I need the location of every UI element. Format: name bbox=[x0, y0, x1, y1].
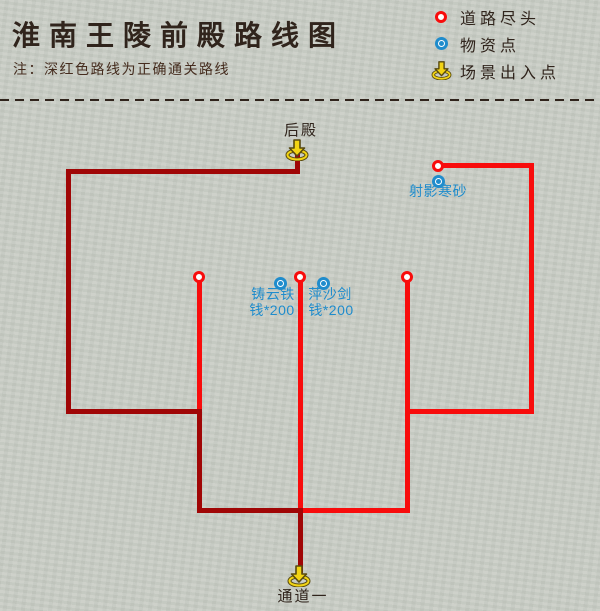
supply-dot bbox=[278, 281, 283, 286]
portal-label-houdian: 后殿 bbox=[284, 119, 318, 140]
supply-label: 萍沙剑 bbox=[308, 286, 352, 302]
route-correct-segment bbox=[66, 169, 71, 414]
supply-dot bbox=[321, 281, 326, 286]
road-end-marker bbox=[401, 271, 413, 283]
supply-label: 铸云铁 bbox=[251, 286, 295, 302]
portal-icon-tongdao-yi bbox=[287, 565, 311, 587]
portal-arrow-icon bbox=[431, 61, 452, 80]
road-end-marker bbox=[193, 271, 205, 283]
supply-point-icon bbox=[430, 34, 452, 54]
legend-item-portal: 场景出入点 bbox=[430, 61, 560, 80]
legend-item-road-end: 道路尽头 bbox=[430, 7, 560, 26]
supply-label: 钱*200 bbox=[249, 302, 294, 318]
route-branch-segment bbox=[405, 275, 410, 513]
dashed-divider bbox=[0, 99, 600, 101]
route-branch-segment bbox=[529, 163, 534, 414]
legend: 道路尽头 物资点 场景出入点 bbox=[430, 7, 560, 80]
supply-label: 射影寒砂 bbox=[409, 183, 467, 199]
route-correct-segment bbox=[298, 508, 303, 573]
route-map-page: 淮南王陵前殿路线图 注：深红色路线为正确通关路线 道路尽头 物资点 场景出入点 … bbox=[0, 0, 600, 611]
portal-icon bbox=[430, 61, 452, 81]
route-branch-segment bbox=[405, 409, 534, 414]
road-end-marker bbox=[432, 160, 444, 172]
route-correct-segment bbox=[197, 508, 303, 513]
road-end-icon bbox=[430, 7, 452, 27]
legend-label: 场景出入点 bbox=[460, 59, 560, 83]
route-correct-segment bbox=[197, 409, 202, 513]
portal-icon-houdian bbox=[285, 139, 309, 161]
road-end-marker bbox=[294, 271, 306, 283]
route-branch-segment bbox=[298, 508, 410, 513]
route-branch-segment bbox=[197, 275, 202, 414]
route-branch-segment bbox=[298, 275, 303, 513]
route-correct-segment bbox=[66, 409, 202, 414]
portal-label-tongdao-yi: 通道一 bbox=[277, 585, 328, 606]
supply-label: 钱*200 bbox=[308, 302, 353, 318]
legend-item-supply-point: 物资点 bbox=[430, 34, 560, 53]
legend-label: 物资点 bbox=[460, 32, 520, 56]
legend-label: 道路尽头 bbox=[460, 5, 540, 29]
portal-arrow-icon bbox=[287, 565, 311, 587]
route-branch-segment bbox=[435, 163, 534, 168]
page-title: 淮南王陵前殿路线图 bbox=[12, 14, 345, 54]
portal-arrow-icon bbox=[285, 139, 309, 161]
route-correct-segment bbox=[66, 169, 300, 174]
route-note: 注：深红色路线为正确通关路线 bbox=[13, 59, 230, 79]
